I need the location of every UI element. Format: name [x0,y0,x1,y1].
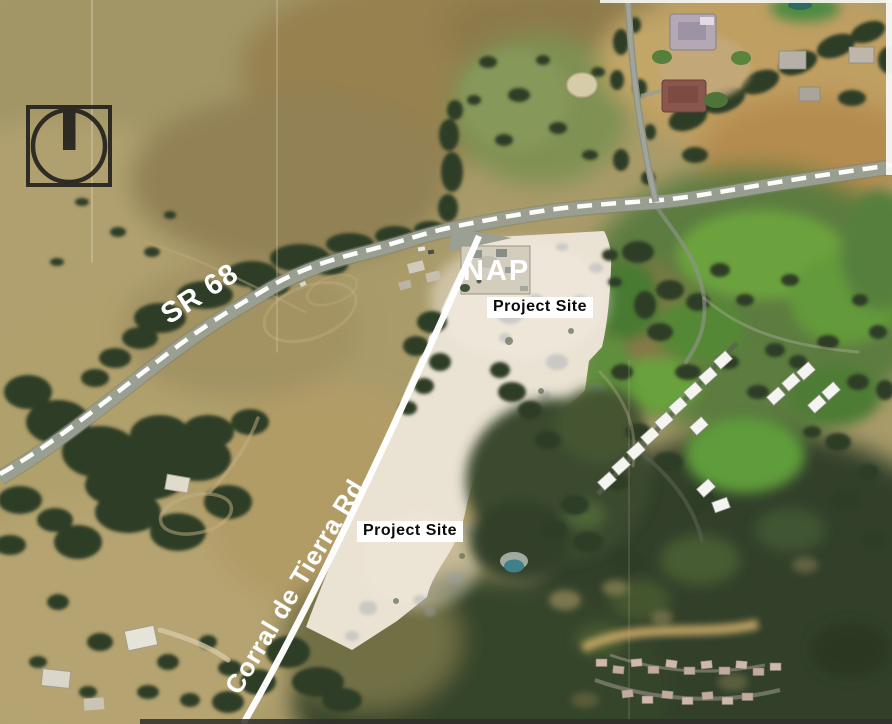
north-arrow-icon [25,104,113,188]
aerial-photo-art [0,0,892,724]
aerial-map-figure: SR 68 NAP Project Site Project Site Corr… [0,0,892,724]
